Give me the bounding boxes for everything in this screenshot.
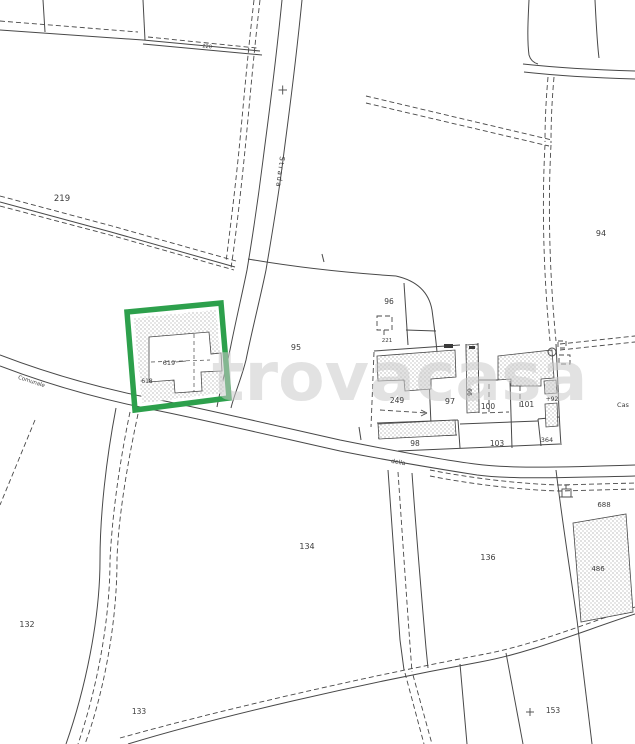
parcel-label-619: 619 (163, 359, 175, 367)
parcel-label-221: 221 (382, 338, 393, 344)
parcel-label-101: 101 (520, 400, 535, 409)
parcel-label-132: 132 (19, 620, 34, 629)
road-label-strada: Strada (274, 156, 286, 189)
parcel-label-98: 98 (410, 439, 420, 448)
parcel-label-100: 100 (481, 402, 496, 411)
parcel-label-688: 688 (597, 501, 610, 509)
cadastral-map-image[interactable]: trovacasa Strada Comunale della 220 219 … (0, 0, 635, 744)
parcel-label-96: 96 (384, 297, 394, 306)
parcel-label-134: 134 (299, 542, 314, 551)
parcel-label-153: 153 (546, 706, 561, 715)
parcel-label-95: 95 (291, 343, 301, 352)
parcel-label-249: 249 (390, 396, 405, 405)
survey-cross-bottom (526, 708, 534, 716)
parcel-label-364: 364 (541, 436, 553, 444)
road-label-della: della (391, 458, 407, 467)
parcel-label-618: 618 (141, 378, 153, 385)
parcel-label-94: 94 (596, 229, 606, 238)
survey-cross-road (279, 86, 288, 95)
parcel-label-219: 219 (54, 194, 70, 204)
parcel-label-486: 486 (591, 565, 605, 573)
parcel-label-92: +92 (546, 396, 559, 403)
parcel-label-136: 136 (480, 553, 495, 562)
parcel-label-97: 97 (445, 397, 455, 406)
parcel-label-220: 220 (202, 44, 212, 51)
cadastral-map-svg: trovacasa Strada Comunale della 220 219 … (0, 0, 635, 744)
parcel-label-99: 99 (467, 388, 474, 396)
label-cas: Cas (617, 401, 630, 409)
parcel-label-103: 103 (490, 439, 505, 448)
parcel-label-133: 133 (132, 707, 147, 716)
